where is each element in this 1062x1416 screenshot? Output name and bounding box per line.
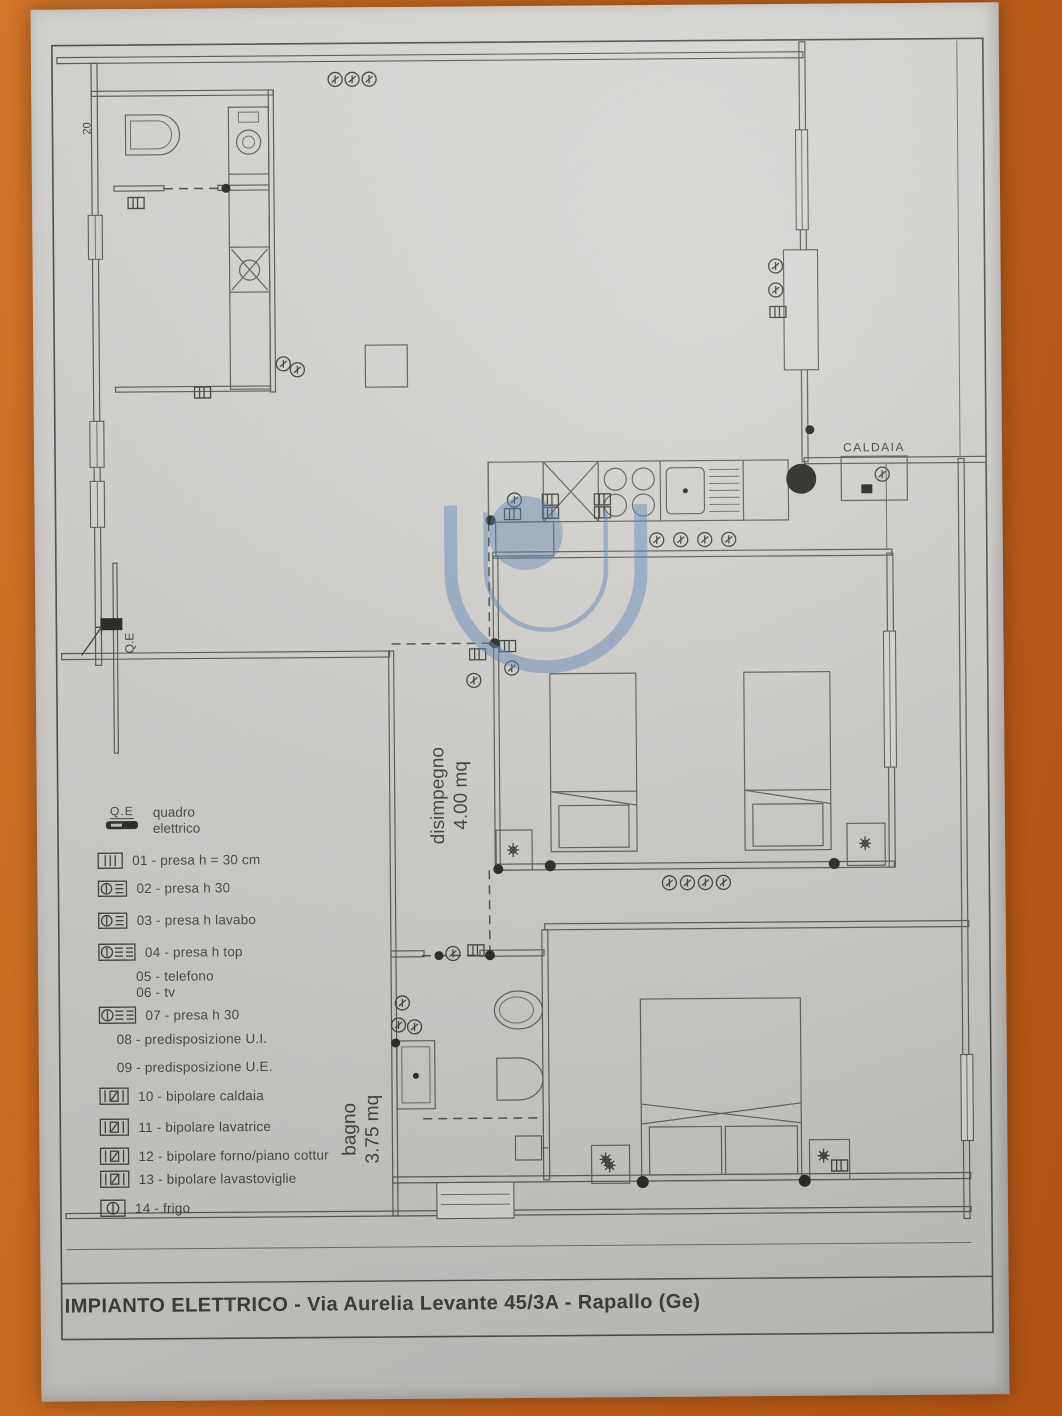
electrical-panel-icon bbox=[105, 819, 139, 831]
legend-item: 09 - predisposizione U.E. bbox=[117, 1059, 273, 1075]
legend-item-label: 07 - presa h 30 bbox=[145, 1007, 239, 1023]
entry-arrow-icon bbox=[81, 627, 101, 655]
legend-bipolar-icon bbox=[99, 1147, 129, 1165]
legend-bipolar-icon bbox=[99, 1118, 129, 1136]
legend-item-label: 13 - bipolare lavastoviglie bbox=[139, 1170, 297, 1186]
electrical-panel-symbol bbox=[100, 618, 122, 630]
legend-bipolar-icon bbox=[100, 1170, 130, 1188]
legend-item: 04 - presa h top bbox=[98, 942, 243, 961]
legend-qe-label-line1: quadro bbox=[153, 805, 200, 821]
qe-plan-label: Q.E bbox=[122, 633, 136, 654]
legend-item-label: 06 - tv bbox=[136, 985, 175, 1000]
hallway-area-label: 4.00 mq bbox=[450, 761, 472, 830]
legend-item: 07 - presa h 30 bbox=[98, 1005, 239, 1024]
legend-item-label: 02 - presa h 30 bbox=[136, 880, 230, 896]
legend-socket-wide-icon bbox=[98, 1006, 136, 1024]
legend-item-label: 12 - bipolare forno/piano cottur bbox=[138, 1147, 328, 1163]
legend-item-qe: Q.E quadro elettrico bbox=[105, 805, 201, 837]
legend-item-label: 11 - bipolare lavatrice bbox=[138, 1118, 271, 1134]
legend-item: 08 - predisposizione U.I. bbox=[117, 1031, 268, 1047]
legend-bipolar-icon bbox=[99, 1087, 129, 1105]
legend-item: 11 - bipolare lavatrice bbox=[99, 1117, 271, 1136]
legend-item-label: 14 - frigo bbox=[135, 1200, 190, 1215]
legend-item-label: 03 - presa h lavabo bbox=[137, 912, 256, 928]
legend-frigo-icon bbox=[100, 1199, 126, 1217]
legend-item-label: 05 - telefono bbox=[136, 968, 214, 984]
legend-item: 03 - presa h lavabo bbox=[98, 911, 257, 929]
legend-item: 13 - bipolare lavastoviglie bbox=[100, 1169, 297, 1189]
legend-item: 14 - frigo bbox=[100, 1199, 190, 1218]
legend-item-label: 01 - presa h = 30 cm bbox=[132, 852, 260, 868]
legend-item: 02 - presa h 30 bbox=[97, 879, 230, 897]
legend-item: 01 - presa h = 30 cm bbox=[97, 851, 260, 869]
legend-item-label: 10 - bipolare caldaia bbox=[138, 1088, 264, 1104]
legend-item-label: 08 - predisposizione U.I. bbox=[117, 1031, 268, 1047]
legend-socket-lines-icon bbox=[97, 852, 123, 869]
legend-socket-wide-icon bbox=[98, 943, 136, 961]
plan-title: IMPIANTO ELETTRICO - Via Aurelia Levante… bbox=[65, 1291, 701, 1318]
legend-socket-circle-icon bbox=[97, 880, 127, 897]
legend-socket-circle-icon bbox=[98, 912, 128, 929]
legend-item: 12 - bipolare forno/piano cottur bbox=[99, 1146, 328, 1166]
pillar bbox=[786, 464, 816, 494]
legend-qe-label-line2: elettrico bbox=[153, 820, 200, 836]
legend-item: 06 - tv bbox=[136, 985, 175, 1000]
legend-item: 10 - bipolare caldaia bbox=[99, 1086, 264, 1105]
legend-item-label: 04 - presa h top bbox=[145, 944, 243, 960]
caldaia-label: CALDAIA bbox=[843, 440, 905, 454]
legend-item-label: 09 - predisposizione U.E. bbox=[117, 1059, 273, 1075]
paper-sheet: CALDAIA Q.E 20 disimpegno 4.00 mq bagno … bbox=[31, 2, 1010, 1402]
legend-item: 05 - telefono bbox=[136, 968, 214, 984]
dimension-label: 20 bbox=[81, 122, 93, 134]
legend: Q.E quadro elettrico 01 - presa h = 30 c… bbox=[97, 799, 445, 1232]
legend-qe-code: Q.E bbox=[110, 805, 134, 819]
